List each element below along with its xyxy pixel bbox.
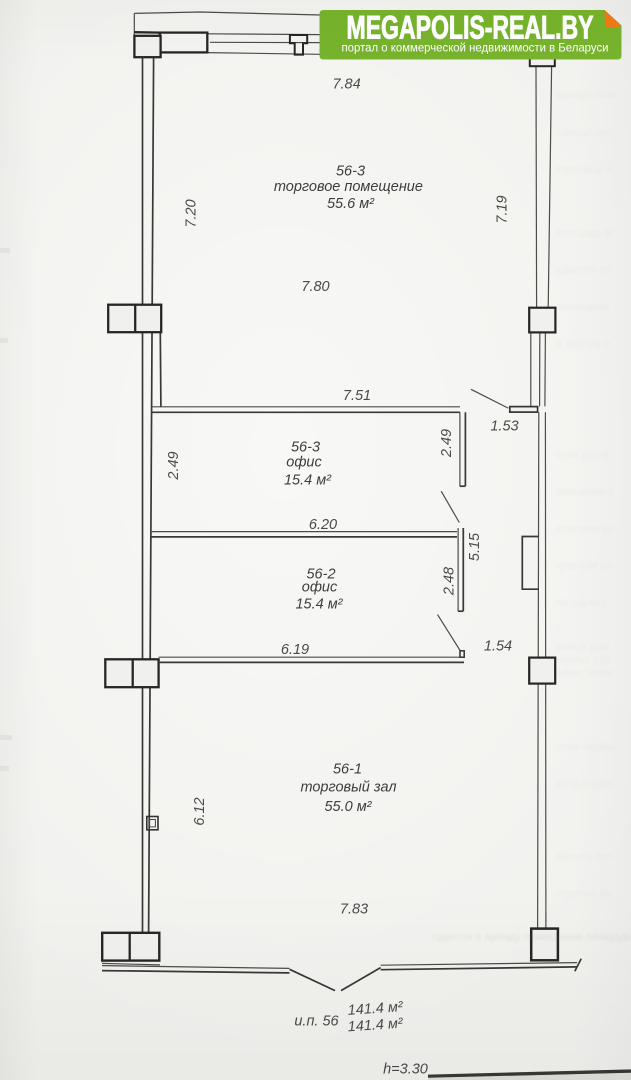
svg-text:высота пот: высота пот: [556, 851, 612, 863]
svg-text:15.4 м²: 15.4 м²: [284, 473, 332, 489]
svg-text:в аренду о: в аренду о: [556, 338, 610, 350]
svg-text:141.4 м²: 141.4 м²: [347, 1016, 404, 1036]
svg-text:7.84: 7.84: [332, 76, 360, 92]
svg-text:6.20: 6.20: [309, 517, 337, 533]
svg-text:офисы скл: офисы скл: [556, 127, 611, 139]
svg-text:6.12: 6.12: [192, 797, 208, 825]
svg-text:арендная с: арендная с: [556, 486, 614, 498]
svg-text:сдается в аренду помещение пло: сдается в аренду помещение площадь: [432, 931, 631, 943]
svg-text:торговое помещение: торговое помещение: [274, 179, 423, 195]
svg-text:срок догов: срок догов: [556, 449, 610, 461]
svg-text:2.49: 2.49: [166, 451, 182, 480]
svg-text:56-3: 56-3: [336, 164, 365, 180]
svg-text:55.0 м²: 55.0 м²: [324, 799, 372, 815]
svg-text:торговый зал: торговый зал: [300, 780, 396, 796]
svg-text:55.6 м²: 55.6 м²: [327, 196, 375, 212]
svg-text:56-1: 56-1: [333, 762, 362, 778]
svg-text:15.4 м²: 15.4 м²: [295, 597, 343, 613]
svg-text:56-3: 56-3: [291, 440, 320, 456]
svg-text:торговые п: торговые п: [556, 164, 612, 176]
svg-text:улица дом: улица дом: [556, 641, 609, 653]
svg-text:платежи ко: платежи ко: [556, 523, 613, 535]
svg-text:h=3.30: h=3.30: [383, 1062, 428, 1078]
svg-text:içne met ко: içne met ко: [556, 560, 612, 572]
svg-text:сдается по: сдается по: [556, 264, 611, 276]
svg-text:корпус стр: корпус стр: [556, 654, 610, 666]
svg-text:по адресу: по адресу: [556, 597, 607, 609]
svg-text:2.48: 2.48: [441, 567, 457, 596]
svg-text:офис номе: офис номе: [556, 667, 612, 679]
svg-text:7.19: 7.19: [494, 195, 510, 223]
svg-text:6.19: 6.19: [281, 642, 309, 658]
svg-text:портал о коммерческой недвижим: портал о коммерческой недвижимости в Бел…: [342, 40, 609, 54]
svg-text:офис: офис: [286, 455, 322, 471]
svg-text:офис: офис: [302, 580, 338, 596]
svg-text:площадь м: площадь м: [556, 227, 613, 239]
svg-text:7.20: 7.20: [183, 199, 199, 227]
svg-text:1.53: 1.53: [490, 419, 518, 435]
svg-text:и.п. 56: и.п. 56: [294, 1014, 339, 1030]
svg-text:7.83: 7.83: [340, 902, 368, 918]
svg-text:отделка ре: отделка ре: [556, 888, 612, 900]
svg-text:7.80: 7.80: [301, 279, 329, 295]
svg-text:7.51: 7.51: [343, 388, 371, 404]
svg-text:вход отдел: вход отдел: [556, 778, 612, 790]
svg-text:этаж первы: этаж первы: [556, 741, 615, 753]
svg-text:1.54: 1.54: [484, 639, 512, 655]
svg-text:5.15: 5.15: [467, 532, 483, 561]
svg-text:2.49: 2.49: [439, 429, 455, 458]
svg-text:помещени: помещени: [556, 301, 609, 313]
svg-text:аренда пом: аренда пом: [556, 89, 616, 101]
